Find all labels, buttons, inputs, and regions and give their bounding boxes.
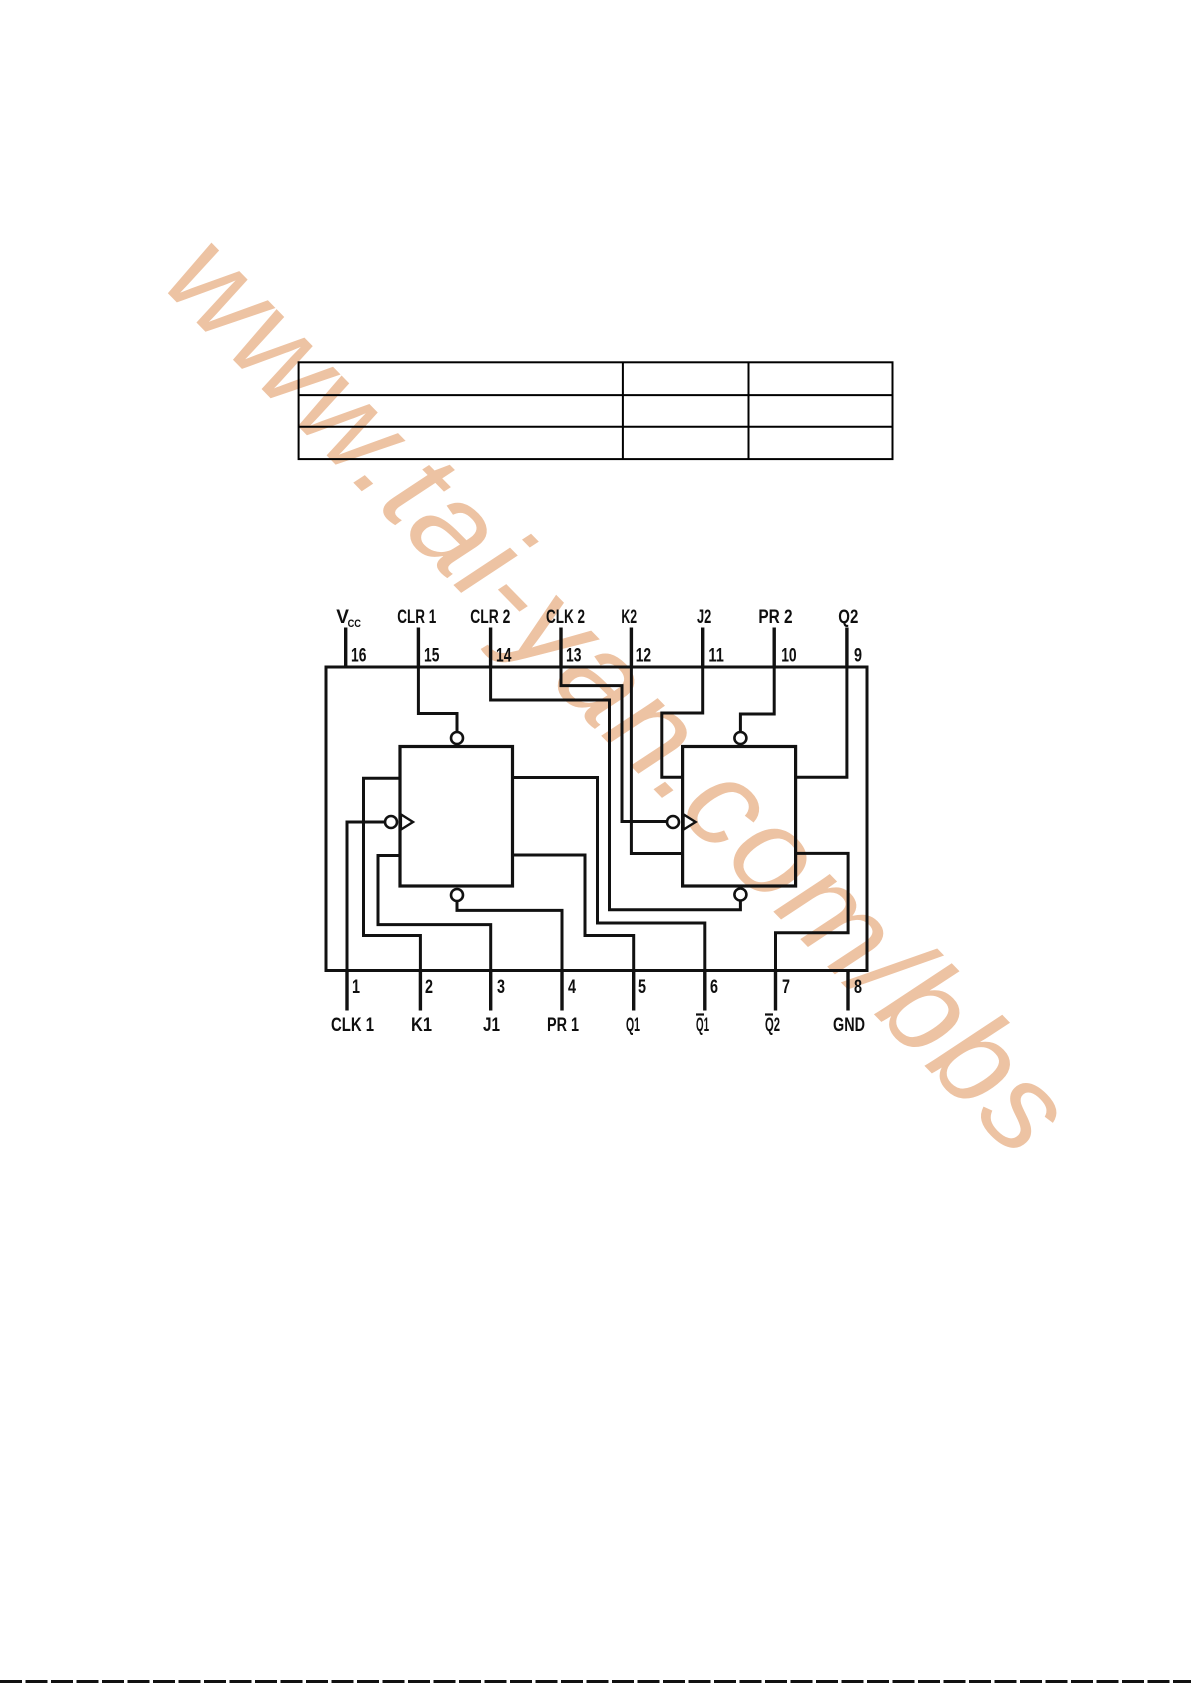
svg-text:K2: K2	[621, 607, 637, 628]
svg-text:14: 14	[496, 646, 512, 667]
svg-text:PR 2: PR 2	[758, 607, 792, 628]
svg-text:15: 15	[424, 646, 440, 667]
svg-text:Q2: Q2	[765, 1015, 780, 1036]
svg-text:3: 3	[497, 977, 505, 998]
svg-text:6: 6	[710, 977, 718, 998]
svg-text:8: 8	[854, 977, 862, 998]
svg-text:4: 4	[568, 977, 576, 998]
svg-text:GND: GND	[833, 1015, 865, 1036]
svg-text:13: 13	[566, 646, 581, 667]
svg-text:10: 10	[781, 646, 796, 667]
svg-text:CLR 1: CLR 1	[397, 607, 436, 628]
svg-text:1: 1	[352, 977, 360, 998]
svg-text:5: 5	[638, 977, 646, 998]
svg-text:K1: K1	[411, 1015, 432, 1036]
svg-text:Q1: Q1	[626, 1015, 640, 1036]
svg-text:2: 2	[425, 977, 433, 998]
svg-text:11: 11	[708, 646, 724, 667]
svg-text:7: 7	[782, 977, 790, 998]
svg-text:12: 12	[636, 646, 651, 667]
svg-text:CC: CC	[348, 618, 361, 630]
svg-text:J2: J2	[697, 607, 711, 628]
svg-text:J1: J1	[483, 1015, 500, 1036]
svg-text:PR 1: PR 1	[547, 1015, 579, 1036]
svg-text:Q2: Q2	[838, 607, 858, 628]
svg-text:16: 16	[351, 646, 366, 667]
svg-text:Q1: Q1	[696, 1015, 709, 1036]
svg-text:CLK 1: CLK 1	[331, 1015, 374, 1036]
svg-text:9: 9	[854, 646, 862, 667]
svg-text:CLK 2: CLK 2	[546, 607, 585, 628]
svg-text:CLR 2: CLR 2	[470, 607, 510, 628]
